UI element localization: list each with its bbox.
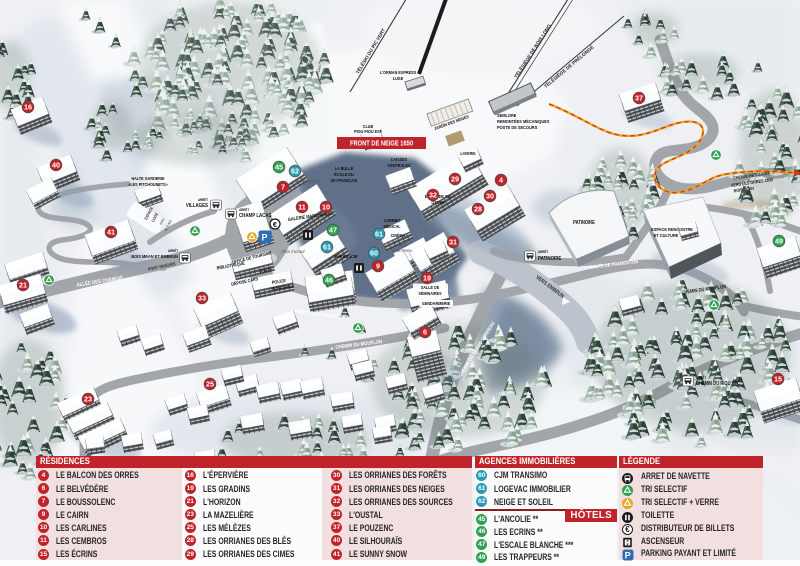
svg-text:VILLAGES: VILLAGES xyxy=(186,203,209,210)
svg-text:CENTRALES: CENTRALES xyxy=(388,163,411,168)
svg-text:62: 62 xyxy=(291,167,299,176)
svg-text:LAVERIE: LAVERIE xyxy=(460,151,476,156)
svg-text:Place: Place xyxy=(398,244,407,248)
svg-text:61: 61 xyxy=(375,230,383,239)
svg-text:LA BULLE: LA BULLE xyxy=(335,166,354,171)
svg-text:SEMLORE: SEMLORE xyxy=(497,113,516,118)
svg-text:GENDARMERIE: GENDARMERIE xyxy=(422,301,450,306)
svg-text:60: 60 xyxy=(370,249,378,258)
svg-text:SÉMINAIRES: SÉMINAIRES xyxy=(418,291,442,296)
svg-text:33: 33 xyxy=(198,294,206,303)
svg-text:CAISSES: CAISSES xyxy=(391,157,408,162)
svg-text:37: 37 xyxy=(635,94,643,103)
svg-text:ESPACE RENCONTRE: ESPACE RENCONTRE xyxy=(651,227,693,232)
svg-text:19: 19 xyxy=(423,274,431,283)
svg-text:HALTE GARDERIE: HALTE GARDERIE xyxy=(131,176,164,181)
svg-text:BOIS MEAN ET EMBRUN: BOIS MEAN ET EMBRUN xyxy=(131,254,178,259)
svg-text:30: 30 xyxy=(486,192,494,201)
svg-text:CHAMP LACAS: CHAMP LACAS xyxy=(239,213,272,220)
svg-text:21: 21 xyxy=(19,281,27,290)
svg-text:23: 23 xyxy=(84,395,92,404)
svg-text:10: 10 xyxy=(322,203,330,212)
svg-text:SALLE DE: SALLE DE xyxy=(421,285,440,290)
svg-text:ARRÊT: ARRÊT xyxy=(239,207,249,212)
svg-text:CHEMIN DU RIOU SEC: CHEMIN DU RIOU SEC xyxy=(696,381,741,386)
svg-text:L'ORMAN EXPRESS: L'ORMAN EXPRESS xyxy=(380,70,416,75)
svg-text:MÉDICAL: MÉDICAL xyxy=(383,224,401,229)
svg-text:SKI FRANÇAIS: SKI FRANÇAIS xyxy=(331,178,358,183)
svg-text:PATINOIRE: PATINOIRE xyxy=(538,256,562,263)
svg-text:CABINET: CABINET xyxy=(384,218,401,223)
svg-text:LUGE: LUGE xyxy=(393,76,404,81)
svg-text:28: 28 xyxy=(474,205,482,214)
svg-text:61: 61 xyxy=(323,243,331,252)
svg-text:PIOU PIOU ESF: PIOU PIOU ESF xyxy=(354,129,382,134)
svg-text:FRONT DE NEIGE 1650: FRONT DE NEIGE 1650 xyxy=(350,140,413,148)
svg-text:P: P xyxy=(261,232,267,242)
svg-text:49: 49 xyxy=(775,237,783,246)
svg-text:7: 7 xyxy=(281,183,285,192)
svg-text:ET CULTURE: ET CULTURE xyxy=(654,233,679,238)
svg-text:ARRÊT: ARRÊT xyxy=(198,197,208,202)
svg-text:4: 4 xyxy=(499,176,503,185)
svg-text:«LES PITCHOUNETS»: «LES PITCHOUNETS» xyxy=(128,182,168,187)
svg-text:ARRÊT: ARRÊT xyxy=(538,249,548,254)
svg-text:Place du festival: Place du festival xyxy=(293,180,318,184)
svg-text:Émile Medou: Émile Medou xyxy=(392,248,413,253)
svg-text:15: 15 xyxy=(774,375,782,384)
svg-text:9: 9 xyxy=(376,262,380,271)
svg-text:€: € xyxy=(626,525,631,534)
svg-text:ARRÊT: ARRÊT xyxy=(168,248,178,253)
svg-text:32: 32 xyxy=(429,191,437,200)
svg-text:P: P xyxy=(625,550,631,560)
svg-text:ÉCOLE DU: ÉCOLE DU xyxy=(334,172,353,177)
svg-text:46: 46 xyxy=(325,276,333,285)
svg-text:REMONTÉES MÉCANIQUES: REMONTÉES MÉCANIQUES xyxy=(497,119,550,124)
svg-text:31: 31 xyxy=(449,238,457,247)
svg-text:16: 16 xyxy=(24,103,32,112)
svg-text:CINÉMA: CINÉMA xyxy=(391,233,406,238)
svg-text:POSTE DE SECOURS: POSTE DE SECOURS xyxy=(497,125,537,130)
svg-text:40: 40 xyxy=(52,161,60,170)
svg-text:PHARMACIE: PHARMACIE xyxy=(335,254,358,259)
svg-text:6: 6 xyxy=(423,328,427,337)
svg-text:11: 11 xyxy=(298,203,306,212)
svg-text:29: 29 xyxy=(451,175,459,184)
svg-text:25: 25 xyxy=(206,380,214,389)
svg-text:ARRÊT: ARRÊT xyxy=(696,375,706,380)
svg-text:47: 47 xyxy=(329,226,337,235)
svg-text:41: 41 xyxy=(107,228,115,237)
svg-text:PATINOIRE: PATINOIRE xyxy=(573,220,595,225)
svg-text:45: 45 xyxy=(275,163,283,172)
svg-text:Place d'accueil: Place d'accueil xyxy=(282,250,305,254)
